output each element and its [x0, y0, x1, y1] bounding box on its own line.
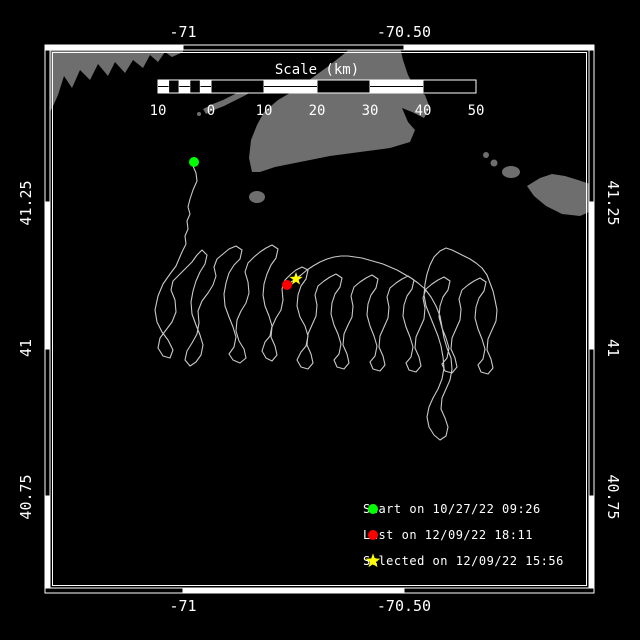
scale-tick-30: 30 [362, 103, 379, 119]
lon-label-top-left: -71 [169, 24, 196, 40]
lat-label-left-4125: 41.25 [18, 180, 34, 225]
track-path[interactable] [155, 163, 497, 440]
landmass-muskeget [483, 152, 489, 158]
scale-bar-title: Scale (km) [275, 62, 359, 78]
legend-item-start: Start on 10/27/22 09:26 [363, 501, 541, 517]
scale-tick-10: 10 [256, 103, 273, 119]
scale-bar [158, 80, 476, 93]
lat-label-right-41: 41 [605, 339, 621, 357]
lon-label-bottom-left: -71 [169, 598, 196, 614]
lat-label-left-41: 41 [18, 339, 34, 357]
scale-tick-50: 50 [468, 103, 485, 119]
start-marker[interactable] [189, 157, 199, 167]
landmass-nomans-land [249, 191, 265, 203]
last-legend-icon [363, 527, 383, 543]
map-viewer: -71 -70.50 -71 -70.50 41.25 41 40.75 41.… [0, 0, 640, 640]
scale-tick-20: 20 [309, 103, 326, 119]
lat-label-right-4075: 40.75 [605, 474, 621, 519]
scale-tick-10l: 10 [150, 103, 167, 119]
legend-last-label: Last on 12/09/22 18:11 [363, 528, 533, 542]
selected-legend-icon [363, 553, 383, 569]
landmass-islet [197, 112, 201, 116]
lat-label-right-4125: 41.25 [605, 180, 621, 225]
legend-start-label: Start on 10/27/22 09:26 [363, 502, 541, 516]
start-legend-icon [363, 501, 383, 517]
lon-label-bottom-right: -70.50 [377, 598, 431, 614]
track-map[interactable] [0, 0, 640, 640]
legend-selected-label: Selected on 12/09/22 15:56 [363, 554, 564, 568]
legend-item-last: Last on 12/09/22 18:11 [363, 527, 533, 543]
scale-tick-0: 0 [207, 103, 215, 119]
legend-item-selected: Selected on 12/09/22 15:56 [363, 553, 564, 569]
lat-label-left-4075: 40.75 [18, 474, 34, 519]
scale-tick-40: 40 [415, 103, 432, 119]
landmass-nantucket [527, 174, 594, 216]
landmass-tuckernuck [491, 160, 498, 167]
last-marker[interactable] [282, 280, 292, 290]
lon-label-top-right: -70.50 [377, 24, 431, 40]
landmass-madaket [502, 166, 520, 178]
